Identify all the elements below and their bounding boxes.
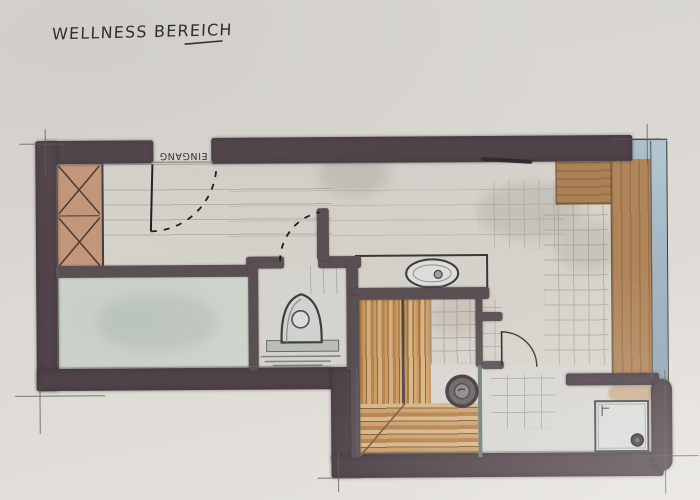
sauna-wood-left bbox=[359, 299, 404, 405]
glass-partition-sauna bbox=[478, 365, 483, 457]
sauna-wood-mid bbox=[404, 298, 431, 408]
wall-top-left bbox=[43, 140, 153, 164]
wall-bottom-left bbox=[37, 367, 334, 391]
wall-bottom bbox=[331, 452, 663, 478]
wall-wc-left bbox=[248, 263, 259, 371]
wall-interior-left bbox=[56, 265, 253, 278]
wardrobe bbox=[54, 162, 104, 270]
floor-green-room bbox=[58, 277, 251, 370]
wall-niche bbox=[475, 312, 502, 321]
title-underline bbox=[185, 41, 223, 44]
wall-passage bbox=[482, 361, 504, 369]
relax-bench-vertical bbox=[610, 152, 654, 375]
wall-outer-left bbox=[35, 141, 59, 391]
wall-sauna-left bbox=[350, 296, 360, 458]
wall-shower-right bbox=[651, 379, 673, 471]
wc-door-leaf bbox=[317, 208, 329, 260]
wall-under-counter bbox=[352, 287, 489, 300]
shower-shelf-blob bbox=[608, 385, 654, 401]
sauna-wood-slats bbox=[360, 403, 478, 456]
entrance-label: EINGANG bbox=[153, 147, 213, 161]
wall-sauna-right bbox=[475, 295, 483, 367]
wall-top-main bbox=[211, 135, 632, 164]
floor-plan: EINGANG bbox=[0, 0, 700, 500]
wall-shower-top bbox=[566, 373, 659, 386]
glass-wall bbox=[650, 141, 669, 386]
floor-plan-canvas: WELLNESS BEREICH bbox=[0, 0, 700, 500]
floor-wc-room bbox=[258, 268, 347, 369]
